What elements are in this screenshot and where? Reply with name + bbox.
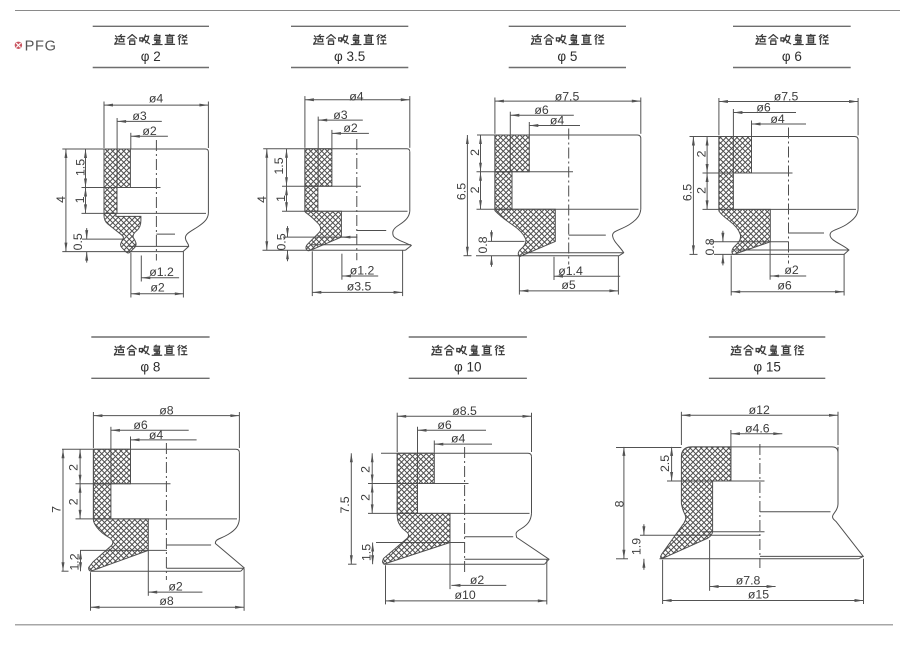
svg-text:2: 2 <box>67 498 81 505</box>
svg-text:6.5: 6.5 <box>454 183 468 200</box>
svg-text:2: 2 <box>694 187 708 194</box>
svg-text:ø2: ø2 <box>168 579 183 593</box>
svg-text:2.5: 2.5 <box>658 455 672 472</box>
svg-text:7.5: 7.5 <box>338 496 352 513</box>
svg-text:2: 2 <box>468 186 482 193</box>
svg-text:ø3: ø3 <box>132 109 147 123</box>
svg-text:ø4: ø4 <box>770 112 785 126</box>
svg-text:1.9: 1.9 <box>629 538 643 555</box>
svg-text:ø1.4: ø1.4 <box>558 264 583 278</box>
svg-text:ø10: ø10 <box>454 588 475 602</box>
svg-text:ø4: ø4 <box>349 89 364 103</box>
svg-text:ø4: ø4 <box>149 92 164 106</box>
svg-text:ø5: ø5 <box>561 278 576 292</box>
svg-text:φ 8: φ 8 <box>140 360 160 375</box>
svg-text:2: 2 <box>694 150 708 157</box>
svg-text:ø3: ø3 <box>333 108 348 122</box>
svg-text:ø7.5: ø7.5 <box>774 89 799 103</box>
svg-text:2: 2 <box>359 466 373 473</box>
svg-text:ø6: ø6 <box>437 418 452 432</box>
svg-text:4: 4 <box>54 196 68 203</box>
svg-text:ø2: ø2 <box>343 121 358 135</box>
svg-text:φ 10: φ 10 <box>454 360 482 375</box>
svg-text:PFG: PFG <box>25 39 57 55</box>
svg-text:ø6: ø6 <box>777 278 792 292</box>
svg-text:ø8: ø8 <box>159 594 174 608</box>
svg-text:0.5: 0.5 <box>274 233 288 250</box>
svg-text:ø4: ø4 <box>550 113 565 127</box>
svg-text:ø8: ø8 <box>159 404 174 418</box>
svg-text:ø4: ø4 <box>149 428 164 442</box>
svg-text:1: 1 <box>274 195 288 202</box>
svg-text:2: 2 <box>468 149 482 156</box>
svg-text:6.5: 6.5 <box>680 184 694 201</box>
svg-text:ø7.5: ø7.5 <box>555 89 580 103</box>
svg-text:7: 7 <box>50 506 64 513</box>
svg-text:ø6: ø6 <box>756 100 771 114</box>
svg-text:4: 4 <box>255 196 269 203</box>
svg-text:8: 8 <box>612 500 626 507</box>
svg-text:ø8.5: ø8.5 <box>452 404 477 418</box>
svg-text:0.5: 0.5 <box>71 233 85 250</box>
svg-text:ø15: ø15 <box>748 588 769 602</box>
svg-text:φ 2: φ 2 <box>141 49 161 64</box>
svg-text:ø1.2: ø1.2 <box>149 265 174 279</box>
svg-text:2: 2 <box>67 464 81 471</box>
svg-text:φ 15: φ 15 <box>753 360 781 375</box>
svg-text:1.5: 1.5 <box>272 157 286 174</box>
svg-text:ø2: ø2 <box>150 281 165 295</box>
svg-text:ø3.5: ø3.5 <box>347 280 372 294</box>
svg-text:0.8: 0.8 <box>476 236 490 253</box>
svg-text:2: 2 <box>359 494 373 501</box>
svg-text:1.2: 1.2 <box>67 553 81 570</box>
svg-text:φ 5: φ 5 <box>557 49 577 64</box>
svg-text:1.5: 1.5 <box>359 544 373 561</box>
svg-text:φ 6: φ 6 <box>782 49 802 64</box>
svg-text:1: 1 <box>73 196 87 203</box>
svg-text:ø6: ø6 <box>133 418 148 432</box>
svg-text:0.8: 0.8 <box>703 238 717 255</box>
svg-text:ø4.6: ø4.6 <box>745 421 770 435</box>
svg-text:ø2: ø2 <box>470 573 485 587</box>
svg-text:ø2: ø2 <box>784 263 799 277</box>
svg-text:ø2: ø2 <box>142 124 157 138</box>
svg-text:ø1.2: ø1.2 <box>350 263 375 277</box>
svg-text:φ 3.5: φ 3.5 <box>334 49 365 64</box>
svg-text:ø12: ø12 <box>749 403 770 417</box>
svg-text:1.5: 1.5 <box>73 159 87 176</box>
svg-text:ø4: ø4 <box>451 432 466 446</box>
svg-text:ø7.8: ø7.8 <box>736 574 761 588</box>
svg-text:ø6: ø6 <box>534 103 549 117</box>
